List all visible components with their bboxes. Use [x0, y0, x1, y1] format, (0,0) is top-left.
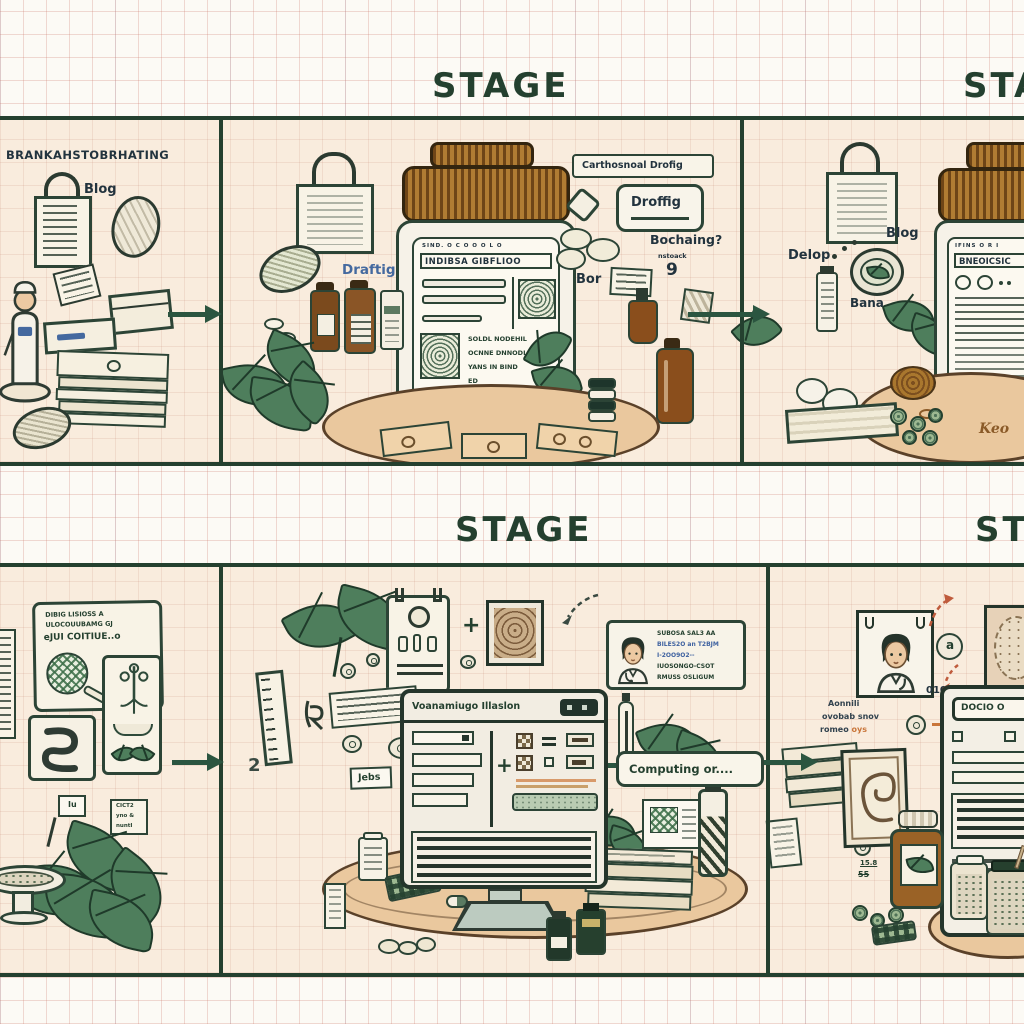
- box-sketch: [108, 289, 174, 335]
- herb-pill: [902, 430, 917, 445]
- root-sketch: [33, 720, 93, 778]
- botanical-card-sketch: [102, 655, 162, 775]
- seed-coin: [340, 663, 356, 679]
- dark-bottle: [546, 917, 572, 961]
- jar-cap: [966, 142, 1024, 170]
- stamp-frame: [984, 605, 1024, 695]
- seed-coin: [366, 653, 380, 667]
- scribble-mark: [302, 697, 328, 731]
- strainer-sketch: [46, 652, 89, 695]
- nstoack-label: nstoack: [658, 252, 687, 260]
- stage-header-bottom-right: STA: [975, 510, 1024, 550]
- drafting-box-text: Droffig: [631, 195, 681, 210]
- herb-pill: [852, 905, 868, 921]
- stage-arrow: [688, 312, 754, 317]
- category-label-text: Carthosnoal Drofig: [582, 160, 683, 171]
- white-slip: [324, 883, 346, 929]
- bottom-band: DIBIG LISIOSS A ULOCOUUBAMG GJ eJUI COIT…: [0, 563, 1024, 977]
- doctor-card-line: I-2OO9O2--: [657, 652, 695, 659]
- table-script: Keo: [979, 421, 1009, 437]
- jar-cap: [430, 142, 534, 168]
- computing-box: Computing or....: [616, 751, 764, 787]
- monitor-neck: [488, 889, 522, 902]
- seed-coin: [906, 715, 926, 735]
- bana-label: Bana: [850, 296, 884, 310]
- note-card-sketch: [53, 263, 102, 306]
- browser-title: DOCIO O: [961, 703, 1005, 713]
- browser-monitor: Voanamiugo Illaslon +: [400, 689, 608, 889]
- person-portrait: [872, 627, 920, 693]
- plus-sign: +: [462, 613, 480, 638]
- coin-capsule-sketch: [850, 248, 904, 296]
- diamond-sketch: [565, 187, 602, 224]
- portrait-card: [856, 610, 934, 698]
- pill-sketch: [556, 248, 586, 270]
- mortar-dish-sketch: [0, 839, 76, 939]
- card-text-line: DIBIG LISIOSS A: [45, 610, 103, 619]
- coin-a: a: [936, 633, 963, 660]
- herb-pill: [890, 408, 907, 425]
- dot: [832, 254, 837, 259]
- jar-lid: [402, 166, 570, 222]
- shopping-bag-sketch: [34, 196, 92, 268]
- capsule: [416, 937, 436, 952]
- root-card-sketch: [28, 715, 96, 781]
- herb-pill: [922, 430, 938, 446]
- thumbnail-icon: [516, 733, 533, 749]
- plant-tag-text: Iu: [68, 800, 77, 809]
- panel-separator: [766, 567, 770, 973]
- panel-separator: [740, 120, 744, 462]
- capsule: [398, 941, 418, 955]
- blog-label: Blog: [886, 226, 919, 241]
- panel-separator: [219, 120, 223, 462]
- annotation-line: ovobab snov: [822, 712, 879, 721]
- white-jar: [358, 837, 388, 881]
- bor-label: Bor: [576, 272, 601, 287]
- computing-box-text: Computing or....: [629, 762, 733, 776]
- coin-letter: a: [946, 638, 954, 652]
- annotation-line: Aonnili: [828, 699, 859, 708]
- glass-jar: [986, 869, 1024, 935]
- thumbnail-icon: [516, 755, 533, 771]
- stage-arrow: [764, 760, 802, 765]
- note-line: CICT2: [116, 803, 134, 809]
- plant-tag: Iu: [58, 795, 86, 817]
- pill-sketch: [586, 238, 620, 262]
- browser-button: [560, 699, 598, 716]
- doctor-id-card: SUBOSA SAL3 AA BILES2O an T2BJM I-2OO9O2…: [606, 620, 746, 690]
- dot: [852, 240, 857, 245]
- flower-sketch: [107, 660, 161, 722]
- stage-header-top-right: STA: [963, 66, 1024, 106]
- category-label-box: Carthosnoal Drofig: [572, 154, 714, 178]
- browser-title: Voanamiugo Illaslon: [412, 701, 520, 712]
- stage-header-bottom: STAGE: [455, 510, 593, 550]
- stage-arrow: [172, 760, 208, 765]
- dropper-bottle-sketch: [628, 300, 658, 344]
- doctor-card-line: IUOSONGO-CSOT: [657, 663, 714, 670]
- jar-label-line: YANS IN BIND: [468, 363, 518, 371]
- tote-bag-sketch: [296, 184, 374, 254]
- striped-tube: [698, 789, 728, 877]
- card-text-line: ULOCOUUBAMG GJ: [45, 620, 113, 629]
- cookie-sketch: [890, 366, 936, 400]
- dot: [842, 246, 847, 251]
- box-sketch: [43, 318, 117, 355]
- woven-bundle-sketch: [104, 190, 169, 264]
- plus-sign: +: [496, 753, 513, 777]
- jar-label-toprow: IFINS O R I: [955, 243, 999, 249]
- number-two: 2: [248, 755, 261, 776]
- small-note: 15.8: [860, 859, 877, 867]
- jebs-tag: Jebs: [350, 766, 393, 789]
- seed-coin: [460, 655, 476, 669]
- tote-bag-handle: [312, 152, 356, 188]
- delop-label: Delop: [788, 248, 830, 263]
- capsule: [378, 939, 400, 954]
- white-slip: [766, 817, 803, 868]
- botanical-note-card: [642, 799, 700, 849]
- botanical-stamp: [518, 279, 556, 319]
- tote-bag-handle: [840, 142, 880, 176]
- seed-coin: [342, 735, 362, 753]
- amber-bottle-sketch: [656, 348, 694, 424]
- stage-arrow: [168, 312, 206, 317]
- card-text-line: eJUI COITIUE..o: [44, 632, 121, 643]
- glass-jar: [950, 862, 988, 920]
- jar-label-line: SOLDL NODEHIL: [468, 335, 527, 343]
- edge-card-sketch: [0, 629, 16, 739]
- annotation-line: romeo oys: [820, 725, 867, 734]
- dark-bottle: [576, 909, 606, 955]
- jar-label-title: BNEOICSIC: [959, 257, 1011, 267]
- dashed-arrow-icon: [554, 589, 604, 631]
- ear-sketch: [850, 761, 907, 839]
- book-stack-sketch: [55, 350, 172, 428]
- doctor-card-line: RMUSS OSLIGUM: [657, 674, 714, 681]
- top-band: BRANKAHSTOBRHATING Blog SIND. O C O: [0, 116, 1024, 466]
- hanging-card-sketch: [386, 595, 450, 693]
- jar-label-toprow: SIND. O C O O O L O: [422, 243, 503, 249]
- nine-label: 9: [666, 260, 678, 280]
- drafting-box: Droffig: [616, 184, 704, 232]
- blog-label: Blog: [84, 182, 117, 197]
- wood-stamp-sketch: [486, 600, 544, 666]
- stage-header-top: STAGE: [432, 66, 570, 106]
- vial-sketch: [816, 272, 838, 332]
- green-button: [512, 793, 598, 811]
- doctor-card-line: SUBOSA SAL3 AA: [657, 630, 715, 637]
- jar-label-title: INDIBSA GIBFLIOO: [425, 257, 521, 267]
- doctor-portrait: [614, 629, 652, 687]
- red-dashed-arrow-icon: [924, 592, 956, 630]
- botanical-stamp: [420, 333, 460, 379]
- bowl-sketch: [113, 724, 153, 736]
- ruler-sketch: [255, 670, 293, 766]
- small-note: 55: [858, 870, 869, 879]
- illustration-canvas: { "headers": {"stage_top":"STAGE","sta_t…: [0, 0, 1024, 1024]
- capsule: [446, 895, 468, 908]
- supplement-bottle: [890, 829, 944, 909]
- texture-square-sketch: [680, 288, 714, 324]
- leaf-icon: [905, 853, 934, 876]
- herb-pill: [928, 408, 943, 423]
- jebs-tag-text: Jebs: [358, 772, 381, 784]
- leaf-icon: [128, 741, 155, 767]
- doctor-card-line: BILES2O an T2BJM: [657, 641, 719, 648]
- drafting-note: Draftig: [342, 262, 396, 278]
- bochaing-label: Bochaing?: [650, 232, 722, 247]
- herb-pill: [888, 907, 904, 923]
- jar-lid: [938, 168, 1024, 222]
- bottle-cap: [898, 810, 938, 828]
- stacked-pills-sketch: [588, 378, 618, 426]
- branding-label: BRANKAHSTOBRHATING: [6, 148, 169, 162]
